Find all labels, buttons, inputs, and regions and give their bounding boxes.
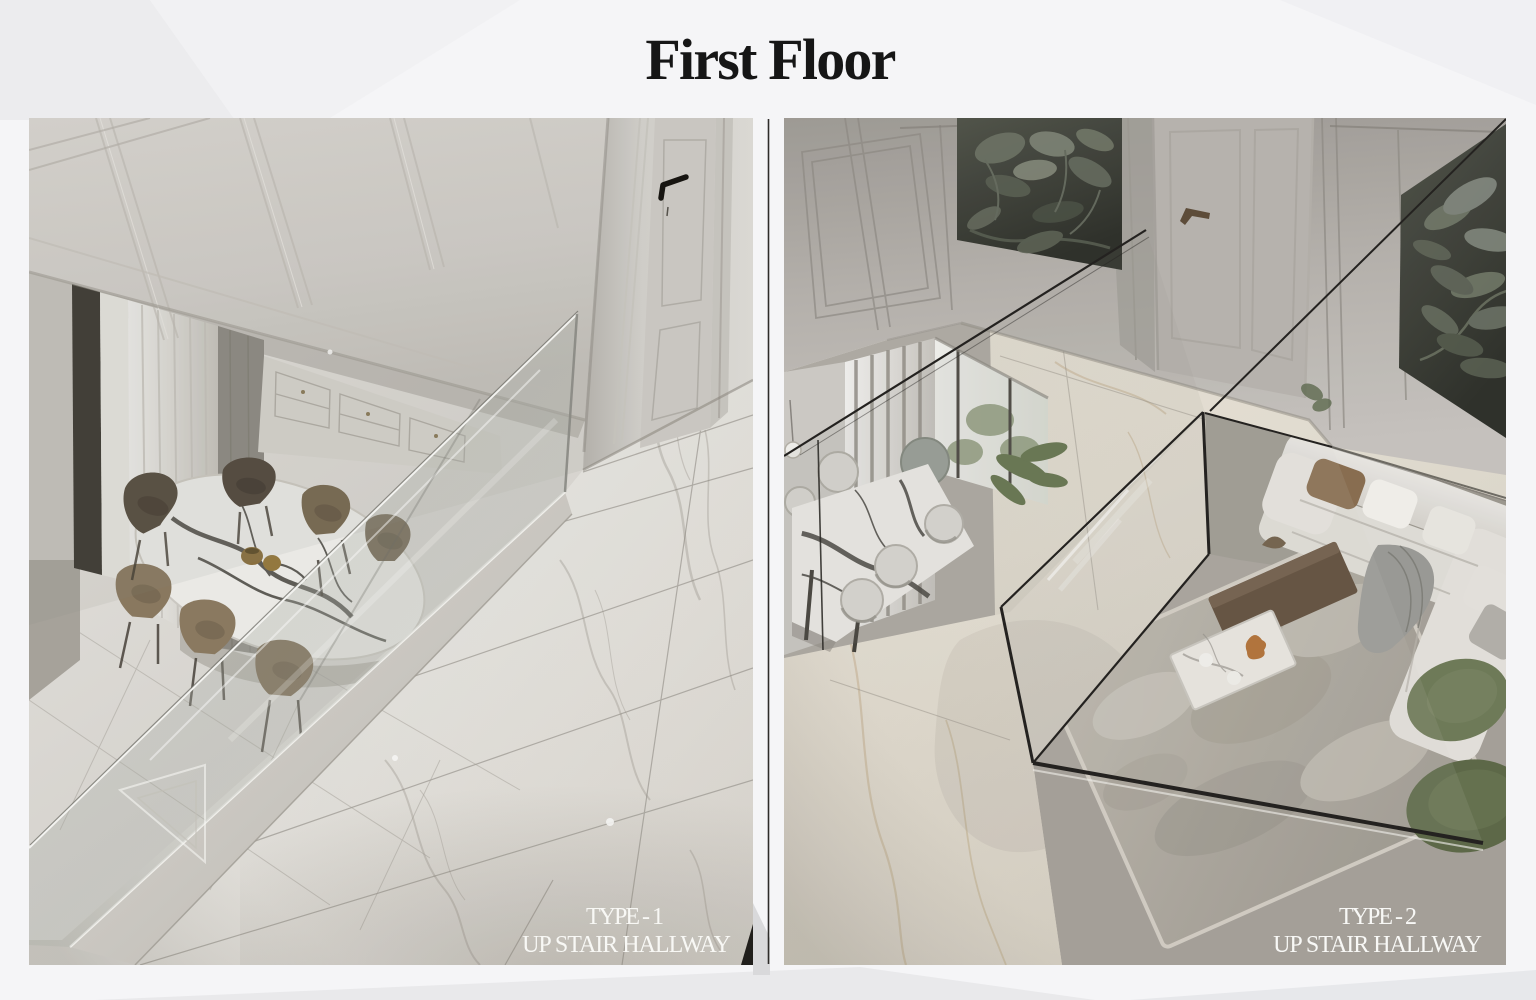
svg-text:First Floor: First Floor — [645, 27, 895, 92]
